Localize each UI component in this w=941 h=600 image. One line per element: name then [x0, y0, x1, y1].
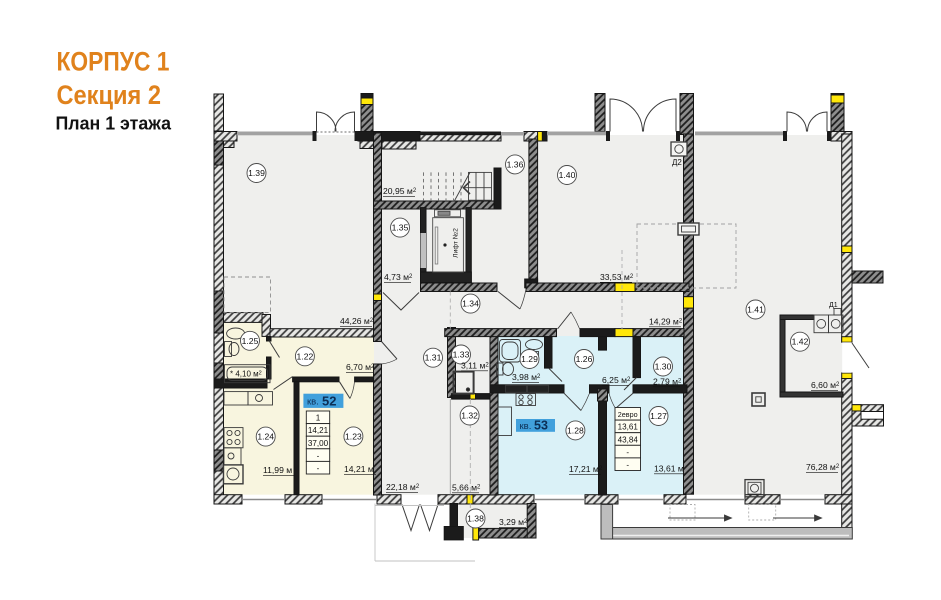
svg-text:-: - [626, 461, 629, 470]
svg-text:14,29 м2: 14,29 м2 [649, 317, 683, 327]
svg-text:1.31: 1.31 [425, 353, 442, 363]
svg-text:* 4,10 м2: * 4,10 м2 [230, 370, 262, 379]
svg-text:13,61 м: 13,61 м [654, 464, 684, 474]
svg-text:1.33: 1.33 [453, 350, 470, 360]
svg-text:11,99 м: 11,99 м [263, 465, 292, 475]
svg-text:1.27: 1.27 [650, 411, 667, 421]
svg-text:1.29: 1.29 [521, 354, 538, 364]
svg-text:22,18 м2: 22,18 м2 [386, 482, 420, 492]
svg-text:33,53 м2: 33,53 м2 [600, 272, 634, 282]
svg-text:-: - [317, 451, 320, 460]
svg-text:6,25 м2: 6,25 м2 [602, 375, 631, 385]
svg-text:44,26 м2: 44,26 м2 [340, 316, 374, 326]
svg-text:6,60 м2: 6,60 м2 [811, 380, 840, 390]
svg-text:-: - [626, 448, 629, 457]
svg-text:53: 53 [534, 419, 548, 433]
svg-text:1.23: 1.23 [345, 431, 362, 441]
svg-text:1.39: 1.39 [248, 168, 265, 178]
svg-text:20,95 м2: 20,95 м2 [383, 186, 417, 196]
svg-text:4,73 м2: 4,73 м2 [384, 272, 413, 282]
svg-text:КОРПУС 1: КОРПУС 1 [57, 47, 170, 77]
svg-text:1.34: 1.34 [462, 299, 479, 309]
svg-text:1.41: 1.41 [747, 305, 764, 315]
svg-text:Лифт №2: Лифт №2 [453, 228, 460, 258]
svg-text:1.42: 1.42 [792, 337, 809, 347]
svg-text:1.40: 1.40 [559, 170, 576, 180]
svg-text:-: - [317, 464, 320, 473]
svg-text:1.32: 1.32 [461, 411, 478, 421]
svg-text:1.26: 1.26 [576, 354, 593, 364]
svg-text:37,00: 37,00 [308, 439, 329, 448]
svg-text:Секция 2: Секция 2 [57, 80, 162, 110]
svg-text:1.36: 1.36 [507, 159, 524, 169]
svg-text:1.28: 1.28 [567, 425, 584, 435]
svg-text:76,28 м2: 76,28 м2 [806, 462, 840, 472]
svg-text:5,66 м2: 5,66 м2 [452, 483, 481, 493]
svg-text:6,70 м2: 6,70 м2 [346, 362, 375, 372]
svg-text:13,61: 13,61 [618, 423, 639, 432]
svg-text:1.35: 1.35 [392, 223, 409, 233]
svg-text:2евро: 2евро [618, 410, 638, 419]
svg-text:43,84: 43,84 [618, 435, 639, 444]
svg-text:1.38: 1.38 [467, 514, 484, 524]
svg-text:Д2: Д2 [672, 158, 682, 167]
svg-text:3,98 м2: 3,98 м2 [512, 372, 541, 382]
svg-text:17,21 м2: 17,21 м2 [569, 464, 603, 474]
svg-text:14,21 м: 14,21 м [344, 464, 374, 474]
svg-text:1.24: 1.24 [257, 432, 274, 442]
svg-text:Д1: Д1 [829, 302, 838, 309]
svg-text:кв.: кв. [307, 397, 319, 408]
svg-text:14,21: 14,21 [308, 426, 329, 435]
svg-text:3,11 м2: 3,11 м2 [461, 361, 489, 371]
svg-text:1.30: 1.30 [655, 362, 672, 372]
svg-text:План 1 этажа: План 1 этажа [56, 113, 172, 134]
svg-text:52: 52 [322, 393, 336, 408]
svg-text:2,79 м2: 2,79 м2 [653, 377, 682, 387]
svg-text:3,29 м2: 3,29 м2 [499, 517, 528, 527]
svg-text:кв.: кв. [520, 421, 532, 432]
svg-text:1.22: 1.22 [297, 351, 314, 361]
svg-text:1: 1 [316, 414, 321, 423]
svg-text:1.25: 1.25 [242, 336, 259, 346]
